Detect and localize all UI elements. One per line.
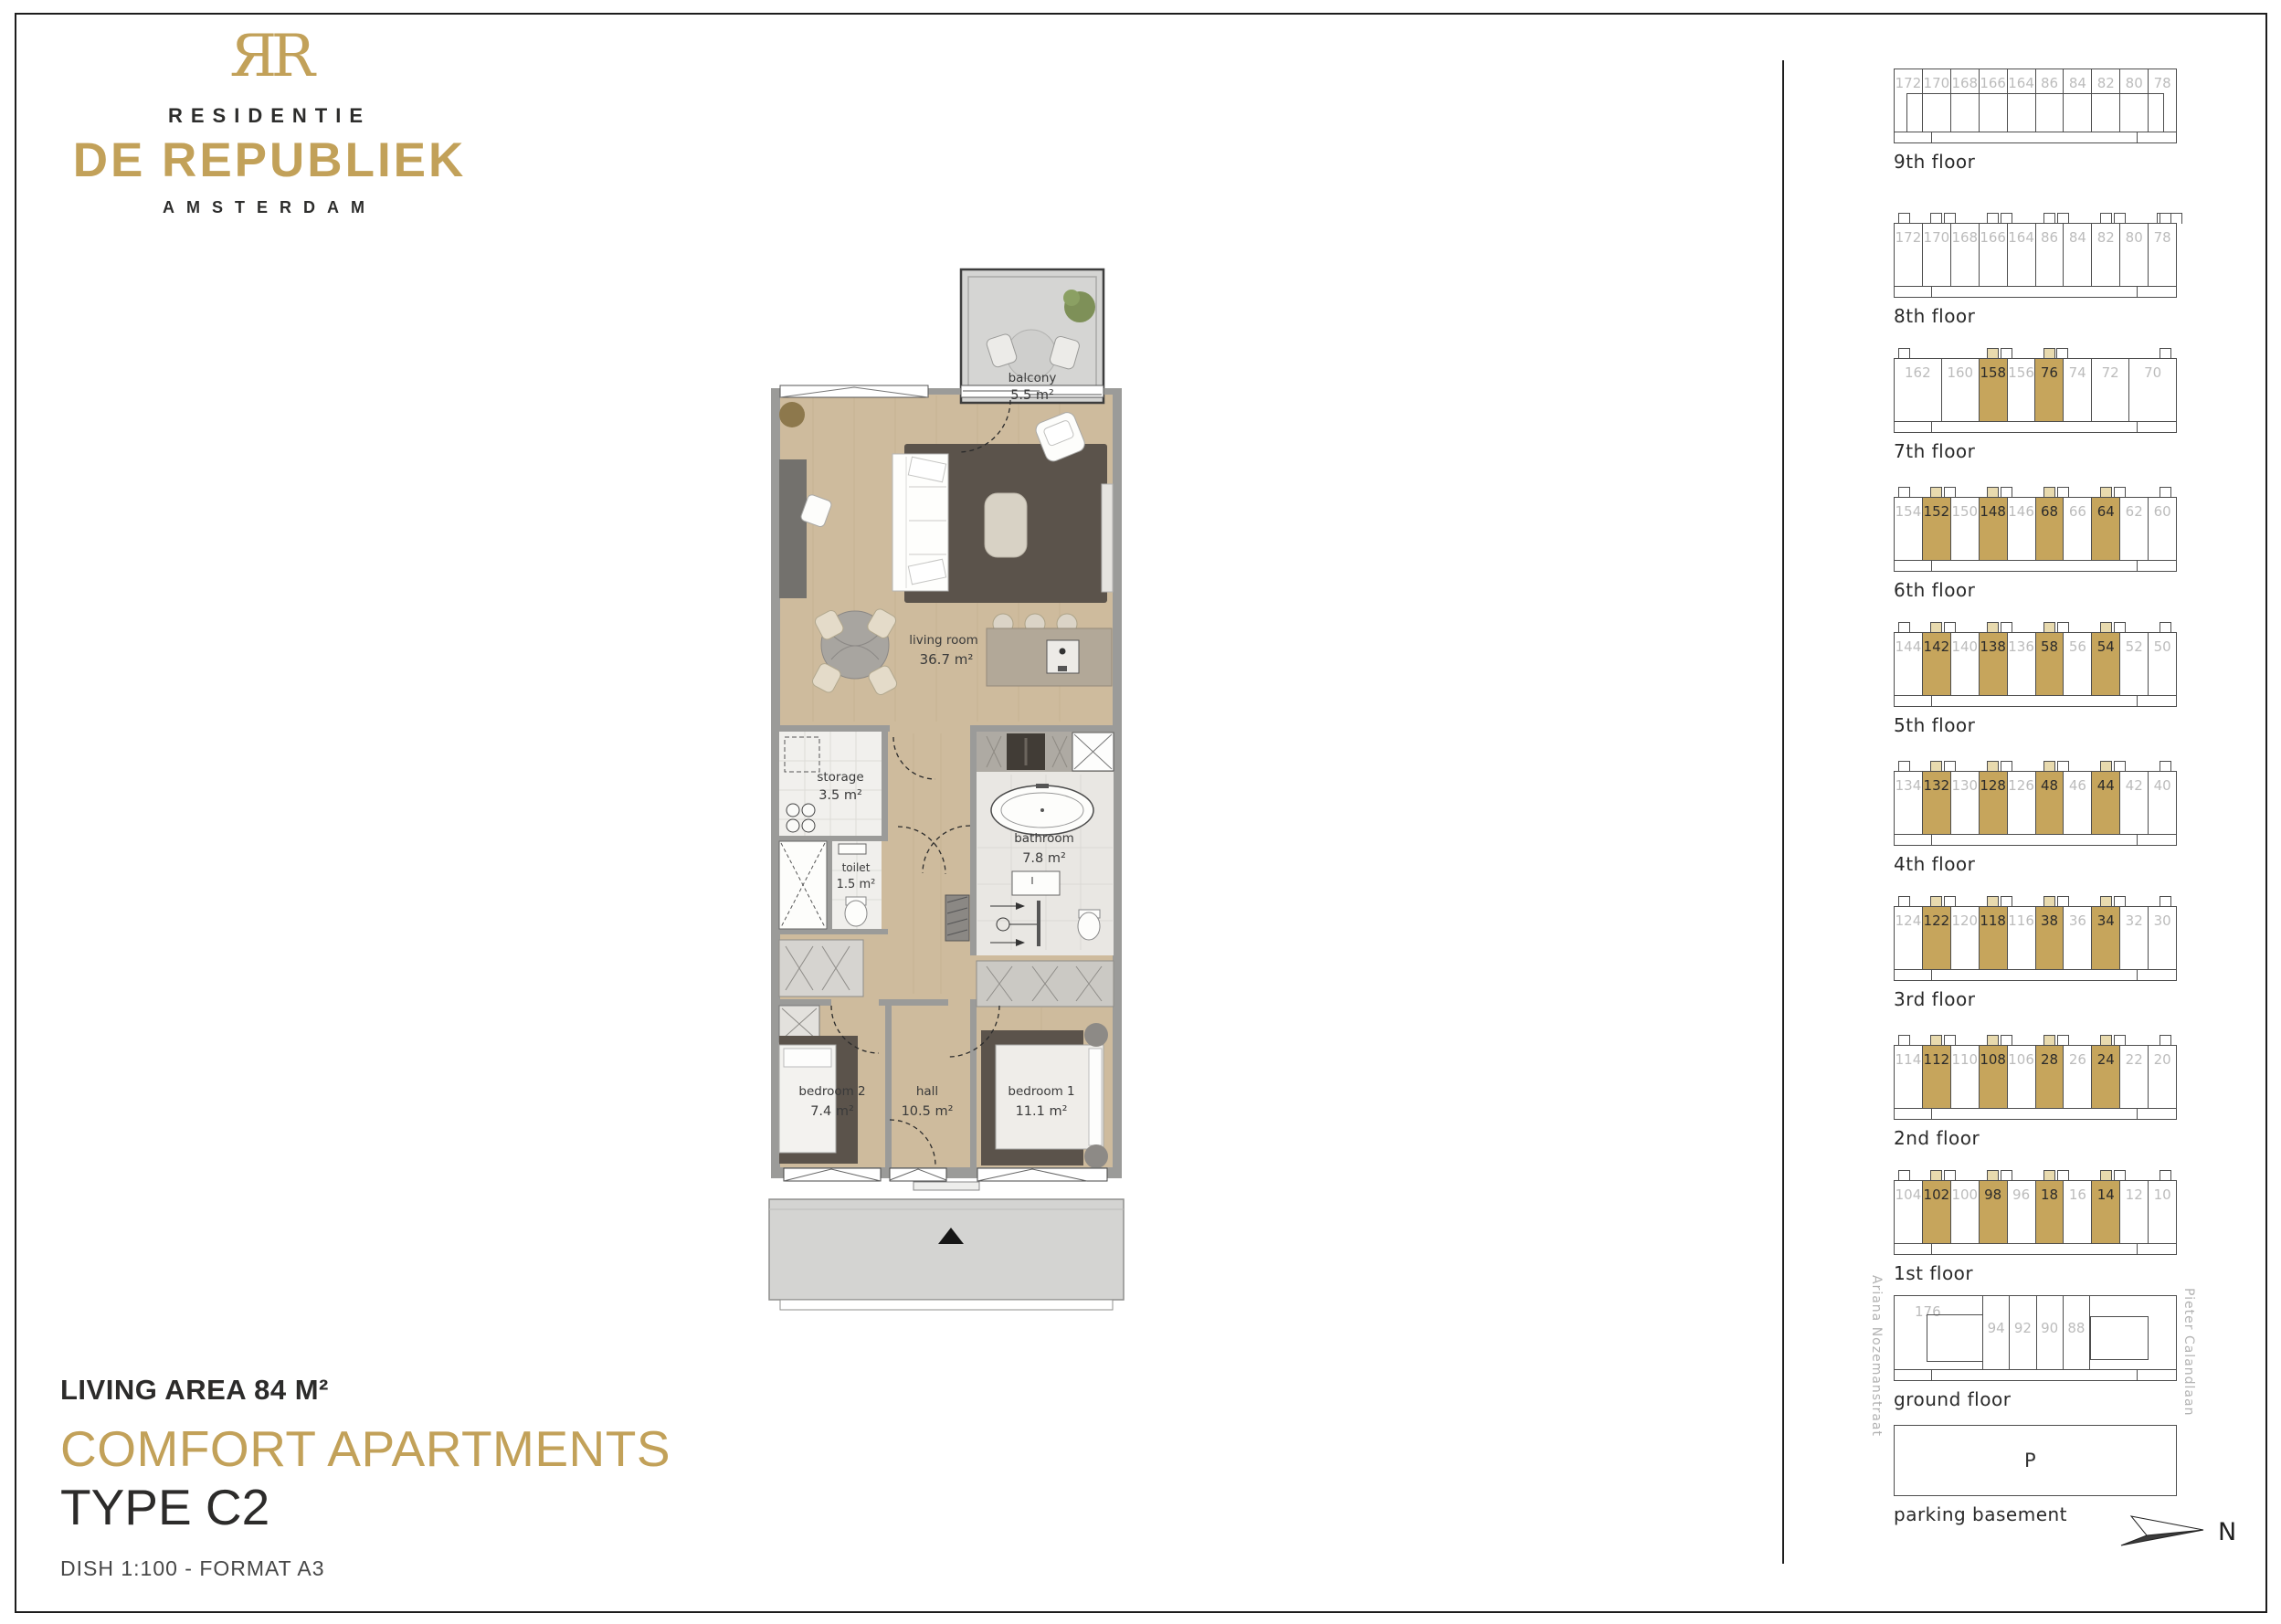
- floor-label: 5th floor: [1894, 714, 2177, 736]
- unit-124: 124: [1895, 907, 1923, 969]
- unit-58: 58: [2036, 633, 2065, 695]
- unit-166: 166: [1980, 224, 2008, 286]
- category-title: COMFORT APARTMENTS: [60, 1419, 671, 1478]
- unit-78: 78: [2149, 69, 2176, 132]
- unit-168: 168: [1951, 69, 1980, 132]
- unit-16: 16: [2064, 1181, 2092, 1243]
- unit-48: 48: [2036, 772, 2065, 834]
- floor-row-parking-basement: Pparking basement: [1894, 1414, 2177, 1525]
- unit-78: 78: [2149, 224, 2176, 286]
- unit-110: 110: [1951, 1046, 1980, 1108]
- unit-138: 138: [1980, 633, 2008, 695]
- hall-label: hall: [916, 1084, 938, 1099]
- unit-106: 106: [2008, 1046, 2036, 1108]
- unit-72: 72: [2092, 359, 2129, 421]
- hob-icon: [787, 804, 799, 817]
- street-label-right: Pieter Calandlaan: [2181, 1288, 2196, 1416]
- floor-row-6th-floor: 15415215014814668666462606th floor: [1894, 486, 2177, 601]
- unit-86: 86: [2036, 224, 2065, 286]
- entry-step: [913, 1182, 979, 1190]
- unit-14: 14: [2092, 1181, 2120, 1243]
- unit-80: 80: [2120, 69, 2149, 132]
- bedroom-2: [779, 1036, 858, 1164]
- unit-84: 84: [2064, 69, 2092, 132]
- unit-22: 22: [2120, 1046, 2149, 1108]
- unit-92: 92: [2010, 1296, 2036, 1369]
- unit-70: 70: [2129, 359, 2176, 421]
- wc: [845, 901, 867, 926]
- pillow: [1089, 1049, 1102, 1145]
- floor-label: 4th floor: [1894, 853, 2177, 875]
- unit-36: 36: [2064, 907, 2092, 969]
- unit-104: 104: [1895, 1181, 1923, 1243]
- floor-label: 1st floor: [1894, 1262, 2177, 1284]
- living-area: 36.7 m²: [920, 651, 974, 668]
- north-arrow: N: [2117, 1511, 2264, 1555]
- unit-20: 20: [2149, 1046, 2176, 1108]
- floor-label: 9th floor: [1894, 151, 2177, 173]
- unit-168: 168: [1951, 224, 1980, 286]
- unit-164: 164: [2008, 69, 2036, 132]
- floor-label: 3rd floor: [1894, 988, 2177, 1010]
- title-block: LIVING AREA 84 M² COMFORT APARTMENTS TYP…: [60, 1374, 671, 1581]
- unit-150: 150: [1951, 498, 1980, 560]
- brand-city: AMSTERDAM: [55, 198, 484, 217]
- unit-172: 172: [1895, 224, 1923, 286]
- floor-row-4th-floor: 13413213012812648464442404th floor: [1894, 760, 2177, 875]
- unit-84: 84: [2064, 224, 2092, 286]
- unit-94: 94: [1982, 1296, 2010, 1369]
- unit-38: 38: [2036, 907, 2065, 969]
- nightstand: [1084, 1023, 1108, 1047]
- unit-134: 134: [1895, 772, 1923, 834]
- unit-136: 136: [2008, 633, 2036, 695]
- unit-132: 132: [1923, 772, 1951, 834]
- unit-46: 46: [2064, 772, 2092, 834]
- unit-42: 42: [2120, 772, 2149, 834]
- toilet-label: toilet: [842, 861, 871, 874]
- bottom-windows: [771, 1167, 1122, 1190]
- hall-closet: [945, 895, 969, 941]
- unit-74: 74: [2064, 359, 2092, 421]
- bathroom-area: 7.8 m²: [1022, 851, 1066, 866]
- unit-88: 88: [2064, 1296, 2090, 1369]
- unit-52: 52: [2120, 633, 2149, 695]
- unit-116: 116: [2008, 907, 2036, 969]
- type-title: TYPE C2: [60, 1478, 671, 1536]
- unit-44: 44: [2092, 772, 2120, 834]
- brand-name: DE REPUBLIEK: [55, 132, 484, 188]
- unit-140: 140: [1951, 633, 1980, 695]
- unit-10: 10: [2149, 1181, 2176, 1243]
- unit-62: 62: [2120, 498, 2149, 560]
- parking-p-label: P: [2024, 1450, 2036, 1471]
- toilet-sink: [839, 844, 866, 854]
- bathroom-label: bathroom: [1014, 831, 1074, 846]
- floor-row-ground-floor: 17694929088ground floor: [1894, 1284, 2177, 1410]
- tv-cabinet: [1102, 484, 1113, 592]
- unit-28: 28: [2036, 1046, 2065, 1108]
- bedroom2-label: bedroom 2: [798, 1084, 865, 1099]
- unit-172: 172: [1895, 69, 1923, 132]
- unit-112: 112: [1923, 1046, 1951, 1108]
- unit-30: 30: [2149, 907, 2176, 969]
- access-gallery: [769, 1199, 1124, 1310]
- unit-18: 18: [2036, 1181, 2065, 1243]
- desk: [779, 459, 807, 598]
- hob-icon: [802, 804, 815, 817]
- shaft: [779, 841, 827, 929]
- floor-row-5th-floor: 14414214013813658565452505th floor: [1894, 621, 2177, 736]
- unit-120: 120: [1951, 907, 1980, 969]
- floor-row-8th-floor: 17217016816616486848280788th floor: [1894, 212, 2177, 327]
- monogram-icon: ЯR: [55, 27, 484, 86]
- balcony-label: balcony: [1008, 371, 1057, 385]
- unit-80: 80: [2120, 224, 2149, 286]
- bedroom1-label: bedroom 1: [1008, 1084, 1074, 1099]
- unit-66: 66: [2064, 498, 2092, 560]
- floor-row-1st-floor: 104102100989618161412101st floor: [1894, 1169, 2177, 1284]
- unit-56: 56: [2064, 633, 2092, 695]
- unit-102: 102: [1923, 1181, 1951, 1243]
- unit-64: 64: [2092, 498, 2120, 560]
- unit-118: 118: [1980, 907, 2008, 969]
- unit-26: 26: [2064, 1046, 2092, 1108]
- unit-122: 122: [1923, 907, 1951, 969]
- unit-170: 170: [1923, 224, 1951, 286]
- floor-label: 7th floor: [1894, 440, 2177, 462]
- unit-50: 50: [2149, 633, 2176, 695]
- street-label-left: Ariana Nozemanstraat: [1869, 1275, 1884, 1437]
- unit-162: 162: [1895, 359, 1942, 421]
- floor-label: 6th floor: [1894, 579, 2177, 601]
- unit-156: 156: [2008, 359, 2036, 421]
- unit-160: 160: [1942, 359, 1980, 421]
- floor-label: 2nd floor: [1894, 1127, 2177, 1149]
- living-area-title: LIVING AREA 84 M²: [60, 1374, 671, 1407]
- brand-logo: ЯR RESIDENTIE DE REPUBLIEK AMSTERDAM: [55, 27, 484, 217]
- floor-row-3rd-floor: 12412212011811638363432303rd floor: [1894, 895, 2177, 1010]
- brand-residence: RESIDENTIE: [55, 104, 484, 128]
- unit-60: 60: [2149, 498, 2176, 560]
- hall-area: 10.5 m²: [902, 1104, 954, 1119]
- floor-stack: 17217016816616486848280789th floor172170…: [1894, 0, 2177, 1624]
- unit-40: 40: [2149, 772, 2176, 834]
- unit-152: 152: [1923, 498, 1951, 560]
- floor-row-2nd-floor: 11411211010810628262422202nd floor: [1894, 1034, 2177, 1149]
- floor-label: 8th floor: [1894, 305, 2177, 327]
- unit-164: 164: [2008, 224, 2036, 286]
- unit-32: 32: [2120, 907, 2149, 969]
- storage-area: 3.5 m²: [818, 788, 862, 803]
- unit-54: 54: [2092, 633, 2120, 695]
- storage-label: storage: [817, 770, 863, 785]
- unit-166: 166: [1980, 69, 2008, 132]
- floor-row-9th-floor: 17217016816616486848280789th floor: [1894, 58, 2177, 173]
- living-label: living room: [909, 633, 978, 648]
- unit-148: 148: [1980, 498, 2008, 560]
- unit-68: 68: [2036, 498, 2065, 560]
- toilet-area: 1.5 m²: [837, 878, 876, 891]
- floor-row-7th-floor: 162160158156767472707th floor: [1894, 347, 2177, 462]
- wc: [1078, 912, 1100, 940]
- unit-142: 142: [1923, 633, 1951, 695]
- pillow: [784, 1049, 831, 1067]
- coffee-table: [985, 493, 1027, 557]
- scale-note: DISH 1:100 - FORMAT A3: [60, 1556, 671, 1581]
- unit-144: 144: [1895, 633, 1923, 695]
- unit-12: 12: [2120, 1181, 2149, 1243]
- unit-154: 154: [1895, 498, 1923, 560]
- unit-86: 86: [2036, 69, 2065, 132]
- floor-plan: balcony 5.5 m² living room 36.7 m² stora…: [767, 263, 1125, 1315]
- unit-114: 114: [1895, 1046, 1923, 1108]
- unit-98: 98: [1980, 1181, 2008, 1243]
- bedroom1-area: 11.1 m²: [1016, 1104, 1068, 1119]
- bathroom-sink: [1012, 871, 1060, 895]
- unit-90: 90: [2037, 1296, 2064, 1369]
- hob-icon: [802, 819, 815, 832]
- unit-96: 96: [2008, 1181, 2036, 1243]
- unit-158: 158: [1980, 359, 2008, 421]
- unit-128: 128: [1980, 772, 2008, 834]
- unit-108: 108: [1980, 1046, 2008, 1108]
- unit-82: 82: [2092, 224, 2120, 286]
- nightstand: [1084, 1144, 1108, 1168]
- unit-76: 76: [2035, 359, 2064, 421]
- north-arrow-icon: [2131, 1516, 2203, 1535]
- floor-label: ground floor: [1894, 1388, 2177, 1410]
- unit-100: 100: [1951, 1181, 1980, 1243]
- unit-24: 24: [2092, 1046, 2120, 1108]
- unit-126: 126: [2008, 772, 2036, 834]
- north-label: N: [2218, 1518, 2236, 1546]
- plan-sheet: ЯR RESIDENTIE DE REPUBLIEK AMSTERDAM: [0, 0, 2281, 1624]
- unit-130: 130: [1951, 772, 1980, 834]
- hob-icon: [787, 819, 799, 832]
- unit-170: 170: [1923, 69, 1951, 132]
- bedroom2-area: 7.4 m²: [810, 1104, 854, 1119]
- balcony-area: 5.5 m²: [1010, 388, 1054, 403]
- unit-34: 34: [2092, 907, 2120, 969]
- plant-icon: [779, 402, 805, 427]
- unit-82: 82: [2092, 69, 2120, 132]
- vertical-divider: [1782, 60, 1784, 1564]
- unit-146: 146: [2008, 498, 2036, 560]
